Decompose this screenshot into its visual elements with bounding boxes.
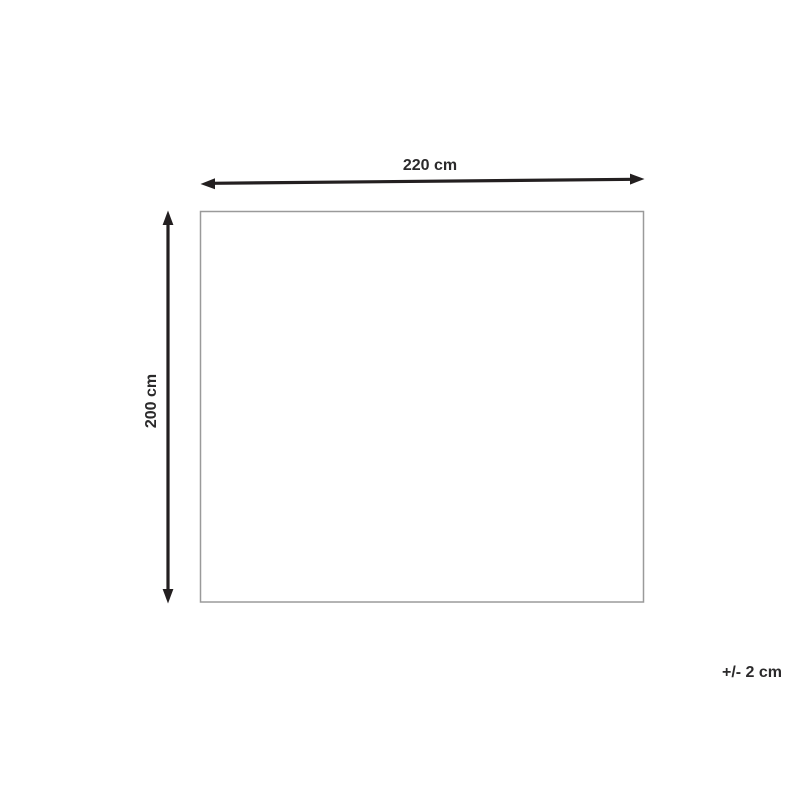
width-arrow-right-head-icon <box>630 174 645 185</box>
height-double-arrow-icon <box>163 211 174 604</box>
width-arrow-left-head-icon <box>201 178 216 189</box>
height-dimension-label: 200 cm <box>143 374 161 428</box>
width-double-arrow-icon <box>201 174 645 190</box>
width-dimension-label: 220 cm <box>330 157 530 175</box>
dimension-diagram: 220 cm 200 cm +/- 2 cm <box>0 0 800 800</box>
height-arrow-top-head-icon <box>163 211 174 226</box>
height-arrow-bottom-head-icon <box>163 589 174 604</box>
product-outline-rectangle <box>201 212 644 603</box>
tolerance-label: +/- 2 cm <box>722 664 782 682</box>
width-arrow-line <box>211 179 634 183</box>
diagram-shapes <box>0 0 800 800</box>
